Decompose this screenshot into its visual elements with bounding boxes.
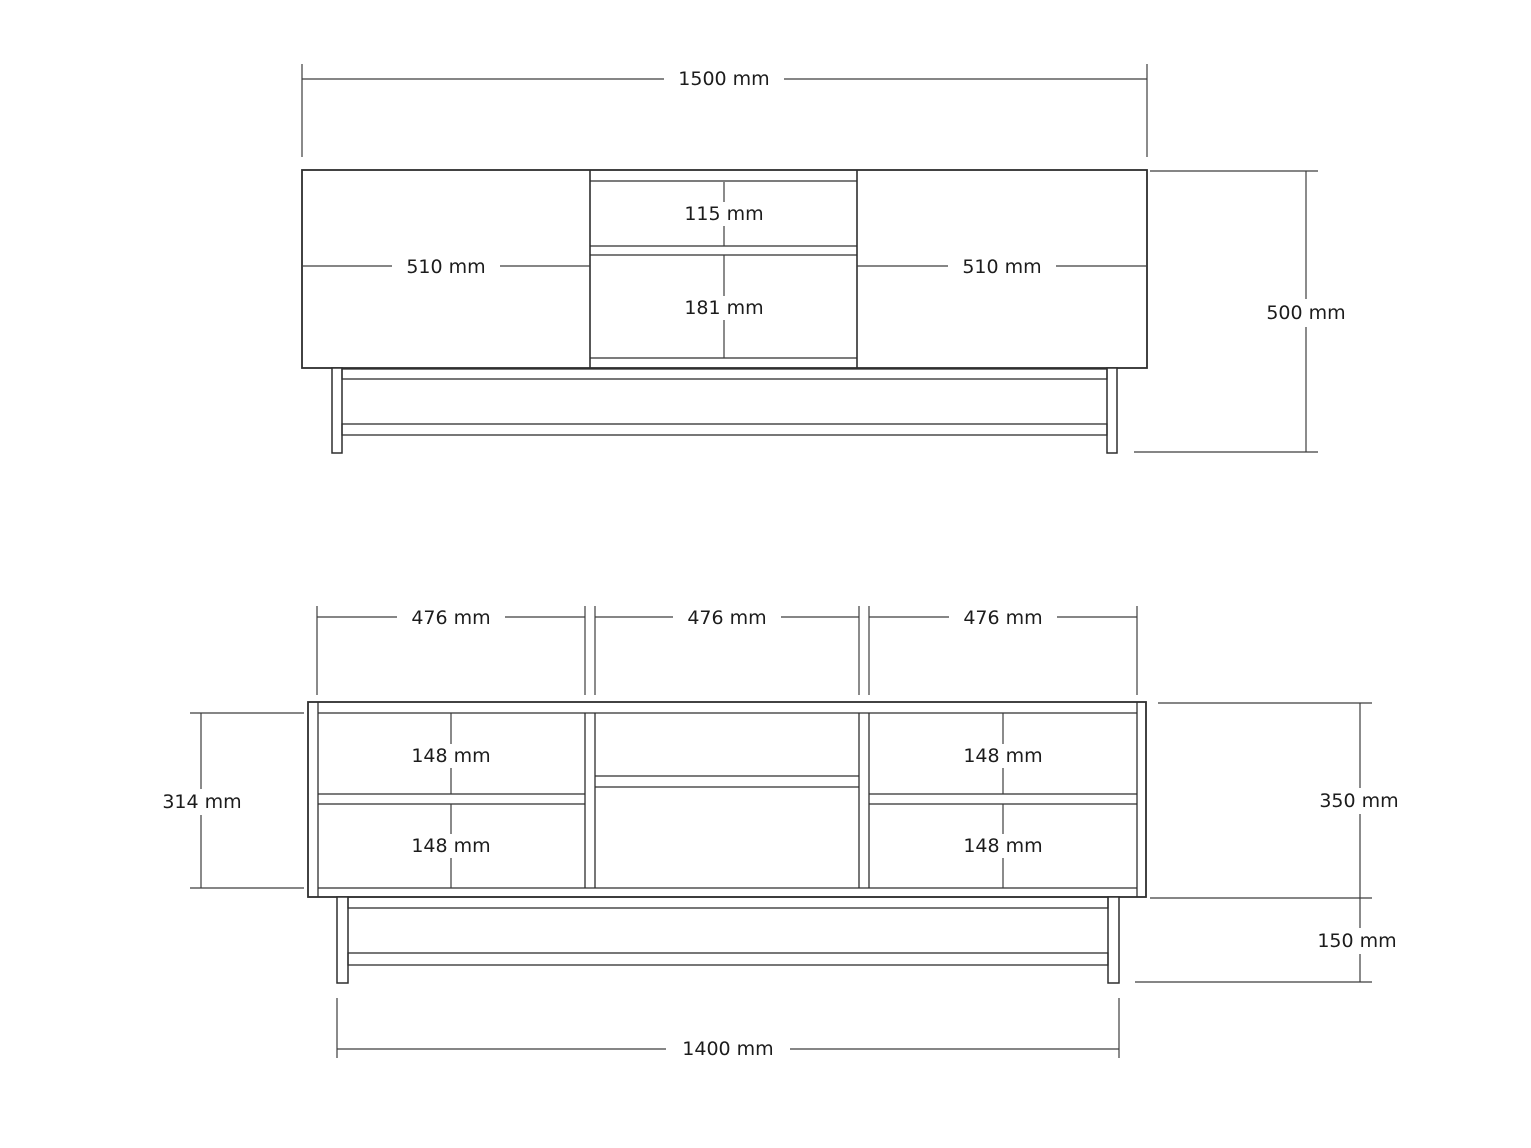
base-left-leg xyxy=(337,897,348,983)
dim-label-drawer-left-upper: 148 mm xyxy=(411,745,490,767)
dim-label-base-width: 1400 mm xyxy=(682,1038,773,1060)
dim-label-carcass-height: 350 mm xyxy=(1319,790,1398,812)
dim-label-interior-height: 314 mm xyxy=(162,791,241,813)
dim-label-section-right: 476 mm xyxy=(963,607,1042,629)
front-left-leg xyxy=(332,368,342,453)
dim-label-drawer-right-upper: 148 mm xyxy=(963,745,1042,767)
base-right-leg xyxy=(1108,897,1119,983)
front-right-leg xyxy=(1107,368,1117,453)
drawing-page: 1500 mm 500 mm 510 mm 510 mm 115 mm xyxy=(0,0,1531,1148)
dim-label-section-left: 476 mm xyxy=(411,607,490,629)
dim-label-right-door: 510 mm xyxy=(962,256,1041,278)
dim-label-upper-drawer: 115 mm xyxy=(684,203,763,225)
dim-label-leg-height: 150 mm xyxy=(1317,930,1396,952)
tv-stand-technical-drawing: 1500 mm 500 mm 510 mm 510 mm 115 mm xyxy=(0,0,1531,1148)
dim-label-front-width: 1500 mm xyxy=(678,68,769,90)
dim-label-lower-drawer: 181 mm xyxy=(684,297,763,319)
canvas-background xyxy=(0,0,1531,1148)
dim-label-drawer-right-lower: 148 mm xyxy=(963,835,1042,857)
dim-label-section-middle: 476 mm xyxy=(687,607,766,629)
dim-label-drawer-left-lower: 148 mm xyxy=(411,835,490,857)
dim-label-left-door: 510 mm xyxy=(406,256,485,278)
dim-label-front-height: 500 mm xyxy=(1266,302,1345,324)
